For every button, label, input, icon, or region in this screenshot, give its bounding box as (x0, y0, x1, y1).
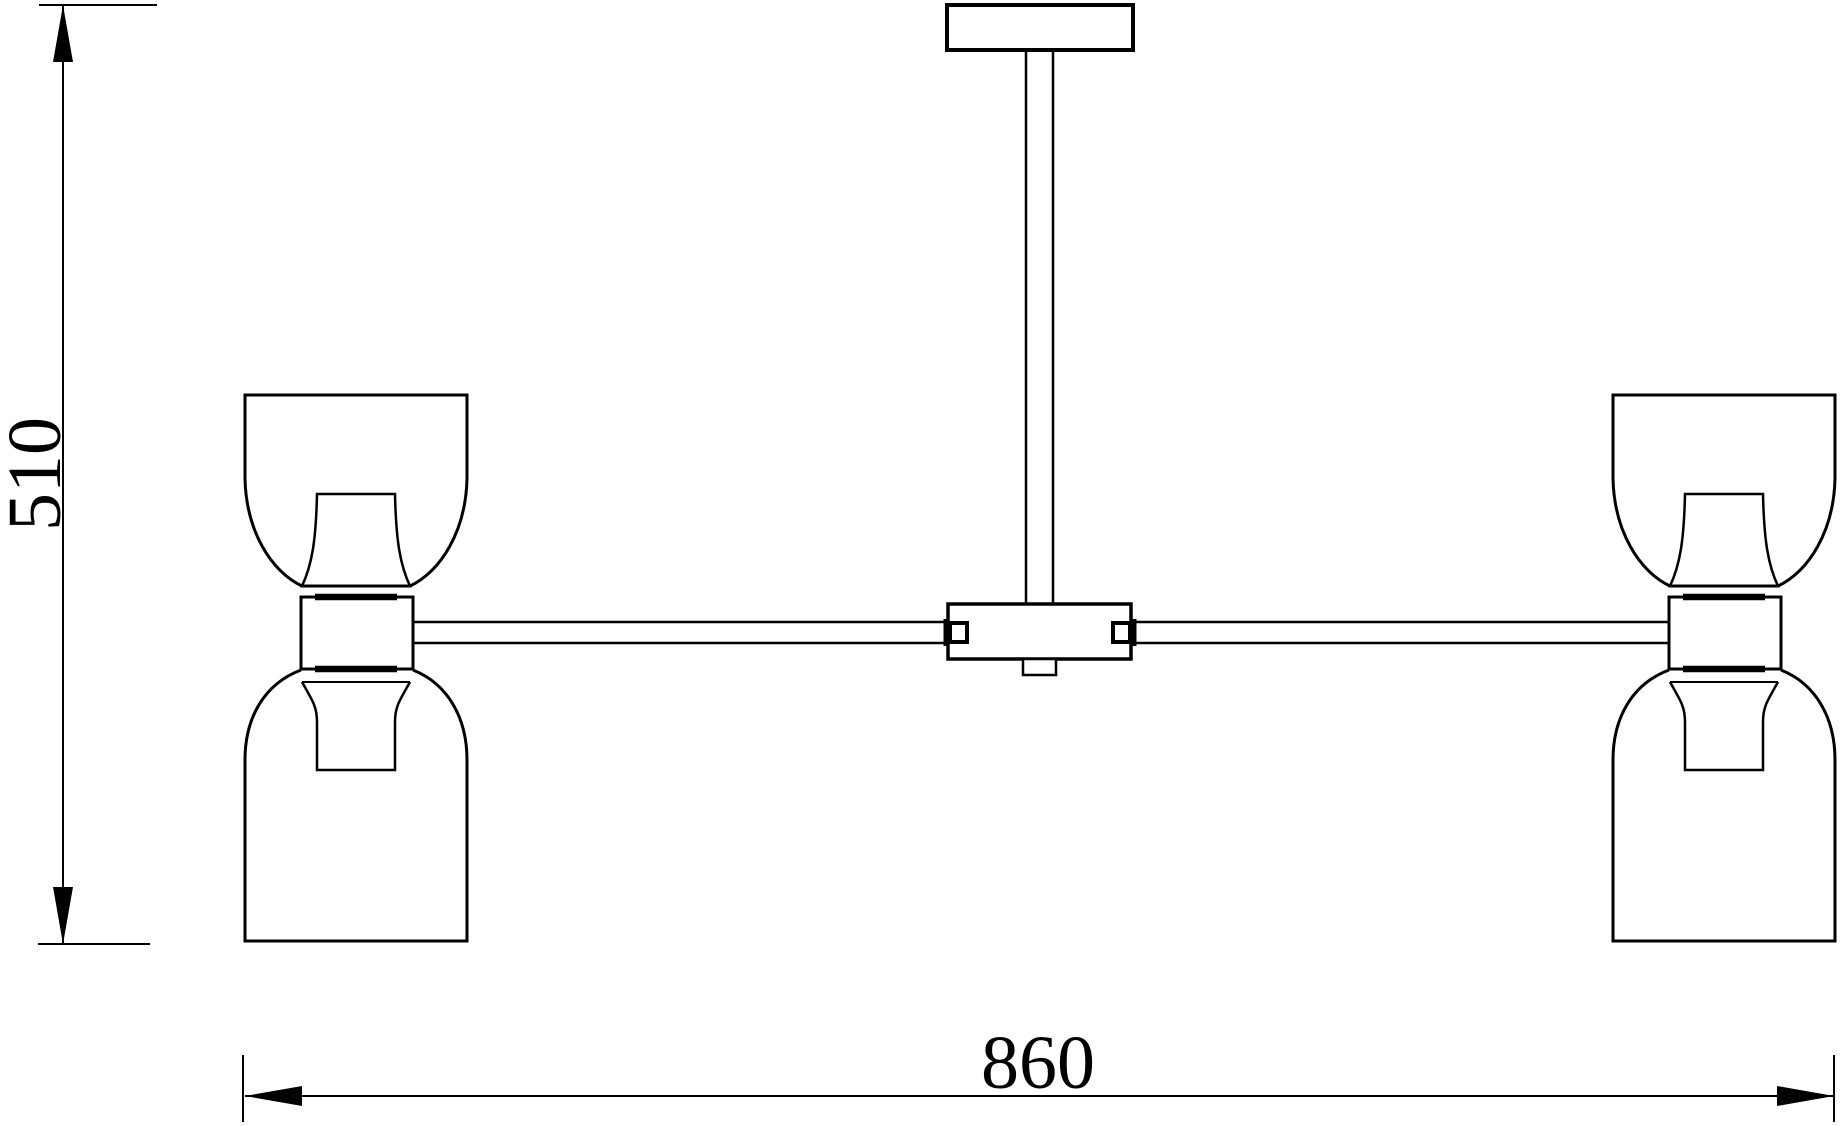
width-dimension-label: 860 (981, 1021, 1095, 1105)
connector-bottom-tab (1023, 659, 1056, 675)
height-bottom-arrow (53, 887, 73, 944)
left-lamp (245, 395, 467, 941)
connector-body (948, 604, 1131, 659)
width-left-arrow (245, 1086, 302, 1106)
ceiling-lamp-drawing: 510 860 (0, 0, 1840, 1126)
ceiling-plate (947, 5, 1133, 50)
height-dimension-label: 510 (0, 417, 77, 531)
ceiling-mount (947, 5, 1133, 604)
center-connector (946, 604, 1134, 675)
height-dimension: 510 (0, 5, 157, 944)
width-right-arrow (1777, 1086, 1834, 1106)
right-lamp (1613, 395, 1835, 941)
drawing-canvas: 510 860 (0, 0, 1840, 1126)
height-top-arrow (53, 5, 73, 62)
width-dimension: 860 (243, 1021, 1834, 1122)
